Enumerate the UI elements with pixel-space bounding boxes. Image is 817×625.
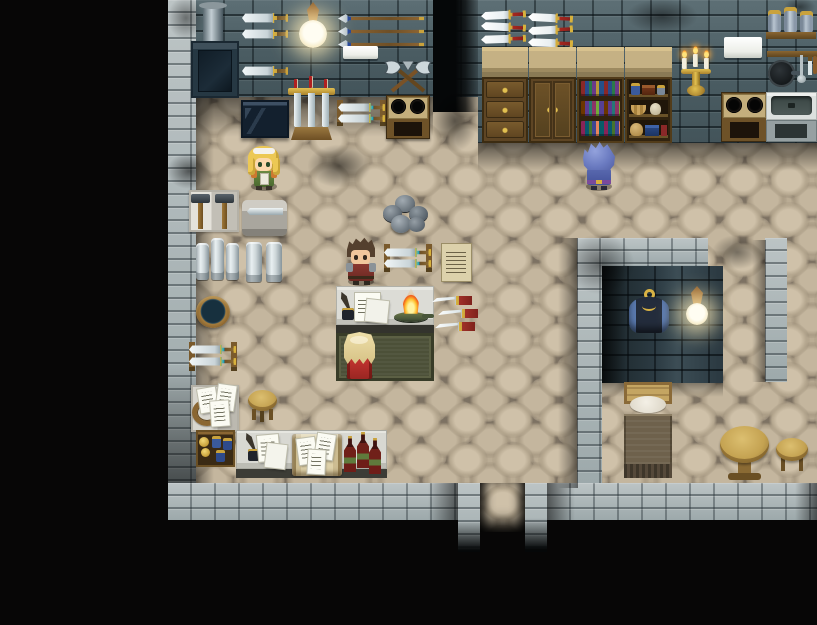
rack-sword [338, 114, 385, 123]
bed[interactable] [624, 382, 672, 482]
smith-foot [353, 281, 359, 285]
stool-leg [260, 411, 264, 422]
candle-flame [704, 50, 709, 58]
cabinet-door [533, 81, 552, 139]
dagger [528, 24, 573, 36]
visitor-hair [583, 142, 615, 170]
ingot-stack-b [246, 240, 283, 284]
ingot-stack-a [196, 238, 240, 282]
girl-headband [253, 148, 275, 154]
service-desk[interactable] [236, 430, 387, 478]
knife [435, 322, 475, 331]
case-shine [245, 108, 285, 134]
coat-chain [642, 301, 656, 311]
display-case[interactable] [241, 100, 289, 138]
girl-foot [256, 186, 262, 190]
stand-base [291, 127, 332, 140]
shadow-left-of-room [558, 238, 578, 488]
crossed-axes [382, 58, 434, 94]
shelf-plank [766, 32, 816, 39]
candle-flame [682, 50, 687, 58]
dagger-display [481, 8, 573, 48]
blue-jar [631, 83, 640, 95]
small-books [661, 125, 667, 136]
lamp-glow [299, 20, 327, 48]
clerk-robe [347, 358, 372, 379]
basket [631, 105, 646, 115]
wall-plaque [343, 46, 378, 59]
girl-eye [258, 162, 262, 167]
corner-shadow-a [612, 0, 712, 40]
blue-chest [645, 125, 659, 136]
pot [650, 103, 661, 115]
slab [242, 200, 287, 236]
wall-lamp [296, 2, 330, 52]
spear [338, 27, 424, 36]
band-shade-c [795, 483, 817, 520]
quench-bucket [196, 296, 230, 328]
ingot [266, 242, 282, 282]
candle [682, 58, 687, 69]
ingot [246, 242, 262, 282]
blanket [624, 414, 672, 464]
shelf-row [629, 100, 668, 117]
small-chest [642, 85, 655, 95]
book-row [581, 121, 620, 136]
candelabra-base [687, 85, 705, 96]
sword-stand [288, 75, 335, 140]
drawer [486, 101, 524, 118]
stool-b [776, 438, 808, 472]
stove-burner [410, 99, 425, 114]
npc-blue-haired[interactable] [582, 139, 616, 191]
stool-leg [252, 409, 256, 420]
girl-apron [260, 173, 269, 185]
hammer-mat [189, 190, 239, 238]
gold-goods [201, 448, 210, 457]
pillow [630, 396, 666, 413]
rack-sword [338, 103, 385, 112]
cabinet-top [625, 47, 672, 77]
dagger [528, 12, 573, 24]
sack [630, 123, 643, 136]
ingot [211, 238, 224, 280]
wall-bottom-left [168, 483, 458, 520]
furnace-opening [198, 50, 232, 92]
cabinet-doors[interactable] [529, 47, 576, 143]
smith-eye [354, 255, 358, 260]
stove-burner [747, 97, 763, 113]
blue-jar [216, 450, 225, 462]
cabinet-row [482, 47, 672, 143]
stool-leg [269, 409, 273, 420]
stove-opening [394, 122, 422, 136]
sink-drain [788, 103, 795, 108]
blue-jar [212, 436, 221, 448]
exit-passage-shadow [480, 483, 525, 532]
rack-sword [384, 259, 431, 268]
shelf-row [629, 120, 668, 138]
floor-smudge-a [295, 136, 383, 196]
band-shade-a [428, 483, 458, 520]
cabinet-top [577, 47, 624, 77]
visitor-foot [601, 186, 607, 190]
stool-leg [799, 458, 803, 471]
gold-goods [199, 437, 209, 447]
work-counter[interactable] [336, 286, 434, 333]
cabinet-top [529, 47, 576, 77]
spear [338, 14, 424, 23]
furnace-cap [199, 2, 227, 9]
slab-blade [247, 208, 283, 215]
stand-blade [322, 93, 329, 131]
stand-candle [309, 76, 313, 88]
ingot [226, 243, 239, 280]
kitchen-stove[interactable] [721, 92, 768, 142]
drawer [486, 121, 524, 138]
room-lamp [685, 286, 709, 328]
wall-knives [432, 294, 482, 334]
sword-rack-b [383, 244, 433, 272]
rack-post [426, 244, 432, 272]
game-viewport [0, 0, 817, 625]
utensil-rack [767, 47, 817, 97]
stove-burner [726, 97, 742, 113]
table-feet [728, 473, 761, 480]
npc-blonde-girl[interactable] [247, 141, 281, 191]
room-top-shade [702, 228, 772, 276]
jamb-shadow-left [458, 520, 480, 556]
jamb-shadow-right [525, 518, 547, 555]
visitor-buckle [596, 180, 602, 184]
girl-hair-side [248, 158, 255, 175]
book-row [581, 81, 620, 96]
wall-notice[interactable] [442, 244, 471, 281]
stool-a [248, 390, 277, 422]
paper-mat [191, 385, 239, 432]
ingot [196, 243, 209, 280]
girl-foot [266, 186, 272, 190]
candelabra [680, 48, 712, 96]
candle [693, 54, 698, 67]
kitchen-sink[interactable] [766, 92, 817, 142]
rack-sword [189, 345, 236, 354]
smith-eye [363, 255, 367, 260]
dagger [481, 21, 526, 33]
lamp-glow [686, 303, 708, 325]
ore-pile [383, 195, 429, 237]
small-jar [657, 85, 665, 95]
table-top [720, 426, 769, 463]
sword-rack-c [188, 340, 238, 371]
round-table [720, 426, 769, 482]
jar [800, 11, 813, 33]
npc-blacksmith[interactable] [344, 236, 378, 286]
knife [432, 296, 472, 305]
girl-hair-side [273, 158, 280, 175]
smith-pauldron [346, 263, 353, 272]
jar [784, 7, 797, 33]
ladle [800, 55, 803, 77]
room-wall-inner-shade [602, 266, 626, 383]
document [210, 400, 230, 426]
hammer-handle [222, 201, 227, 229]
rack-sword [384, 248, 431, 257]
ledger-note [365, 299, 389, 323]
stove-opening [730, 122, 759, 138]
document [307, 450, 325, 475]
drawer [486, 81, 524, 98]
stove-burner [391, 99, 406, 114]
blue-jar [223, 438, 232, 450]
knife [438, 309, 478, 318]
work-slab [242, 200, 287, 238]
ink-bottle [342, 308, 354, 320]
ladle-bowl [797, 75, 806, 83]
hammer-head [215, 194, 234, 203]
kitchen-plaque [724, 37, 762, 58]
smith-belt [348, 276, 374, 279]
jar [768, 10, 781, 33]
cabinet-drawers[interactable] [482, 47, 528, 143]
girl-eye [266, 162, 270, 167]
ore-stone [408, 217, 425, 232]
blanket-fringe [624, 464, 672, 478]
coat-hook[interactable] [628, 289, 670, 335]
candle-flame [693, 46, 698, 54]
shelf-row [629, 80, 668, 97]
book-row [581, 101, 620, 116]
wall-bottom-right [547, 483, 817, 520]
cabinet-top [482, 47, 528, 77]
sword-rack-a [336, 100, 387, 126]
stool-top [248, 390, 277, 411]
cabinet-door [553, 81, 572, 139]
band-shade-b [547, 483, 575, 520]
forge-stove[interactable] [386, 95, 430, 139]
rack-sword [189, 357, 236, 366]
stand-blade [294, 93, 301, 131]
bookshelf[interactable] [577, 47, 624, 143]
smith-pauldron [369, 263, 376, 272]
document [265, 443, 288, 469]
dagger [481, 33, 526, 45]
hanging-spoon [813, 56, 817, 74]
smith-foot [364, 281, 370, 285]
hammer-head [191, 194, 210, 203]
sink-opening [775, 124, 807, 138]
rack-post [384, 244, 390, 272]
hammer-handle [198, 201, 203, 229]
visitor-foot [591, 186, 597, 190]
void-bottom [168, 552, 817, 625]
supply-crate[interactable] [196, 430, 235, 467]
candle [704, 58, 709, 69]
hanging-knife [808, 55, 812, 75]
furnace [191, 3, 239, 98]
void-left [0, 0, 168, 625]
spice-shelf [766, 6, 816, 40]
shadow-under-cabinets [478, 143, 817, 171]
npc-red-clerk[interactable] [342, 331, 377, 381]
stool-top [776, 438, 808, 461]
dagger [481, 9, 526, 21]
curio-shelf[interactable] [625, 47, 672, 143]
clerk-hair-shine [350, 336, 368, 344]
